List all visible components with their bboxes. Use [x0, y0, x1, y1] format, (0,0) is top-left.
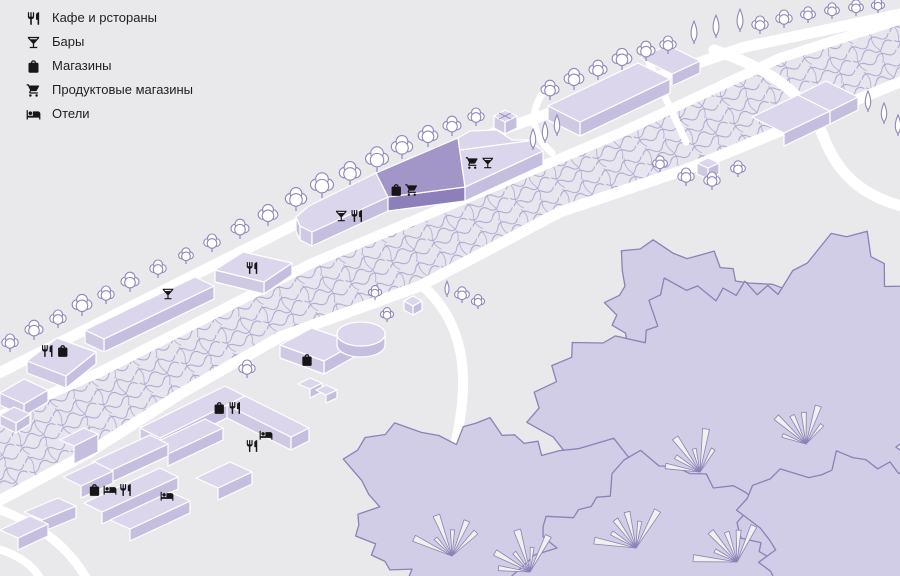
- tree-icon: [731, 161, 746, 177]
- legend-item: Продуктовые магазины: [26, 82, 193, 98]
- isometric-city-map: Кафе и рстораны Бары Магазины Продуктовы…: [0, 0, 900, 576]
- poplar-tree-icon: [737, 9, 743, 32]
- tree-icon: [204, 234, 220, 252]
- tree-icon: [2, 334, 18, 352]
- poplar-tree-icon: [895, 115, 900, 136]
- tree-icon: [801, 7, 816, 23]
- tree-icon: [311, 173, 334, 198]
- tree-icon: [121, 272, 139, 292]
- legend-item-label: Отели: [52, 106, 90, 122]
- legend-item: Магазины: [26, 58, 193, 74]
- kiosk-cube-south: [404, 296, 422, 315]
- hotel-icon: [26, 107, 41, 122]
- tree-icon: [50, 310, 66, 328]
- tree-icon: [285, 188, 306, 211]
- grocery-icon: [26, 83, 41, 98]
- legend-item: Отели: [26, 106, 193, 122]
- tree-icon: [471, 295, 484, 309]
- mall-section-middle[interactable]: [376, 138, 465, 197]
- tree-icon: [849, 0, 864, 16]
- restaurant-icon: [247, 440, 258, 452]
- legend-item-label: Магазины: [52, 58, 112, 74]
- tree-icon: [150, 260, 166, 278]
- tree-icon: [455, 287, 470, 303]
- bar-icon: [26, 35, 41, 50]
- tree-icon: [871, 0, 884, 13]
- poplar-tree-icon: [713, 15, 719, 38]
- tree-icon: [776, 10, 792, 28]
- restaurant-icon: [26, 11, 41, 26]
- map-marker[interactable]: [247, 440, 258, 452]
- legend-item-label: Кафе и рстораны: [52, 10, 157, 26]
- tree-icon: [98, 286, 114, 304]
- tree-icon: [564, 68, 584, 90]
- round-pavilion: [337, 322, 385, 357]
- road-corner-b: [0, 548, 40, 576]
- poplar-tree-icon: [445, 281, 449, 297]
- road-connector-mall: [534, 90, 552, 153]
- legend-item: Кафе и рстораны: [26, 10, 193, 26]
- tree-icon: [380, 308, 393, 322]
- tree-icon: [25, 320, 43, 340]
- tree-icon: [179, 248, 194, 264]
- shop-icon: [26, 59, 41, 74]
- tree-icon: [258, 204, 278, 226]
- tree-icon: [752, 16, 768, 34]
- legend-item-label: Продуктовые магазины: [52, 82, 193, 98]
- legend-item-label: Бары: [52, 34, 84, 50]
- map-legend: Кафе и рстораны Бары Магазины Продуктовы…: [26, 10, 193, 122]
- tree-icon: [418, 125, 438, 147]
- tree-icon: [443, 116, 461, 136]
- poplar-tree-icon: [881, 103, 886, 124]
- tree-icon: [825, 3, 840, 19]
- poplar-tree-icon: [691, 21, 697, 44]
- tree-icon: [391, 136, 412, 159]
- block-building: [196, 462, 252, 500]
- block-building: [0, 516, 48, 550]
- tree-icon: [468, 108, 484, 126]
- tree-icon: [589, 60, 607, 80]
- legend-item: Бары: [26, 34, 193, 50]
- tree-icon: [231, 219, 249, 239]
- tree-icon: [72, 294, 92, 316]
- tree-icon: [366, 147, 389, 172]
